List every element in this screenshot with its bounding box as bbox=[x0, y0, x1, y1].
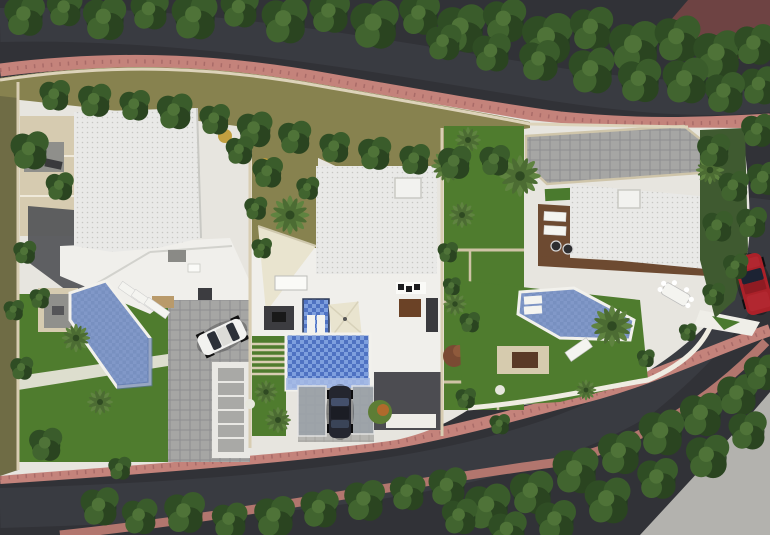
tree bbox=[442, 499, 478, 535]
tree bbox=[301, 489, 339, 527]
tree bbox=[172, 0, 218, 39]
tree bbox=[244, 197, 267, 220]
tree bbox=[618, 59, 661, 102]
tree bbox=[11, 131, 49, 169]
tree bbox=[122, 499, 158, 535]
flowering-shrub bbox=[377, 404, 389, 416]
villa-1-roof-texture bbox=[74, 108, 201, 252]
tree bbox=[723, 254, 749, 280]
tree bbox=[702, 283, 725, 306]
tree bbox=[157, 94, 193, 130]
dining-table bbox=[275, 276, 307, 290]
tree bbox=[319, 132, 350, 163]
tree bbox=[39, 80, 70, 111]
tree bbox=[30, 288, 50, 308]
terrace-chair bbox=[188, 264, 200, 272]
tree bbox=[4, 0, 45, 36]
tree bbox=[426, 25, 462, 61]
tree bbox=[679, 323, 697, 341]
car-roof bbox=[331, 407, 349, 419]
site-plan-render bbox=[0, 0, 770, 535]
in-pool-lounger bbox=[524, 305, 543, 314]
bar-door bbox=[317, 315, 325, 333]
tree bbox=[741, 114, 770, 147]
tree bbox=[490, 414, 510, 434]
glass-fence bbox=[298, 386, 326, 436]
tree bbox=[704, 72, 745, 113]
tree bbox=[399, 144, 430, 175]
tree bbox=[296, 177, 319, 200]
tree bbox=[254, 496, 295, 535]
tree bbox=[456, 388, 476, 408]
tree bbox=[344, 480, 385, 521]
tree bbox=[438, 146, 471, 179]
tree bbox=[429, 467, 467, 505]
skylight bbox=[395, 178, 421, 198]
tree bbox=[358, 137, 391, 170]
tree bbox=[83, 0, 126, 40]
tree bbox=[199, 104, 230, 135]
tree bbox=[473, 33, 511, 71]
tree bbox=[585, 478, 631, 524]
tree bbox=[350, 0, 398, 48]
tree bbox=[680, 393, 723, 436]
tree bbox=[702, 211, 733, 242]
tree bbox=[519, 40, 560, 81]
tree bbox=[119, 90, 150, 121]
tree bbox=[164, 492, 205, 533]
bar-door bbox=[307, 315, 315, 333]
tree bbox=[697, 134, 730, 167]
tree bbox=[252, 157, 283, 188]
tree bbox=[212, 503, 248, 535]
shelf-unit bbox=[426, 298, 438, 332]
tree bbox=[46, 172, 74, 200]
tree bbox=[4, 300, 24, 320]
tree bbox=[309, 0, 350, 33]
tree bbox=[278, 121, 311, 154]
tree bbox=[569, 48, 615, 94]
spa-tub bbox=[551, 241, 561, 251]
dark-car bbox=[326, 384, 354, 440]
outdoor-rug-brown bbox=[399, 299, 421, 317]
terrace-table bbox=[168, 250, 186, 262]
tree bbox=[390, 475, 426, 511]
tree bbox=[29, 428, 62, 461]
tree bbox=[78, 84, 111, 117]
tree bbox=[438, 242, 458, 262]
low-table bbox=[272, 312, 286, 322]
tree bbox=[479, 145, 510, 176]
tree bbox=[13, 241, 36, 264]
deck-lounger bbox=[544, 225, 566, 235]
windshield bbox=[331, 420, 349, 428]
tree bbox=[81, 487, 119, 525]
patio-table bbox=[512, 352, 538, 368]
tree bbox=[686, 435, 729, 478]
tree bbox=[598, 431, 641, 474]
tree bbox=[535, 500, 576, 535]
tree bbox=[637, 349, 655, 367]
tree bbox=[443, 277, 461, 295]
spa-tub bbox=[563, 244, 573, 254]
in-pool-lounger bbox=[524, 295, 543, 304]
tree bbox=[718, 171, 749, 202]
tree bbox=[734, 24, 770, 65]
tree bbox=[262, 0, 308, 43]
scene-svg bbox=[0, 0, 770, 535]
tree bbox=[736, 207, 767, 238]
tree bbox=[663, 58, 709, 104]
tree bbox=[637, 458, 678, 499]
tree bbox=[226, 136, 254, 164]
tree bbox=[108, 457, 131, 480]
skylight bbox=[618, 190, 640, 208]
tree bbox=[639, 410, 685, 456]
lounge-chair bbox=[198, 288, 212, 300]
patio-umbrella bbox=[328, 302, 361, 337]
tree bbox=[460, 312, 480, 332]
tree bbox=[729, 411, 767, 449]
tree bbox=[252, 238, 272, 258]
deck-lounger bbox=[544, 211, 566, 221]
tree bbox=[570, 7, 613, 50]
tree bbox=[10, 357, 33, 380]
garage-wall bbox=[386, 414, 436, 428]
coffee-table bbox=[52, 306, 64, 315]
rear-window bbox=[331, 398, 349, 406]
tree bbox=[655, 16, 701, 62]
